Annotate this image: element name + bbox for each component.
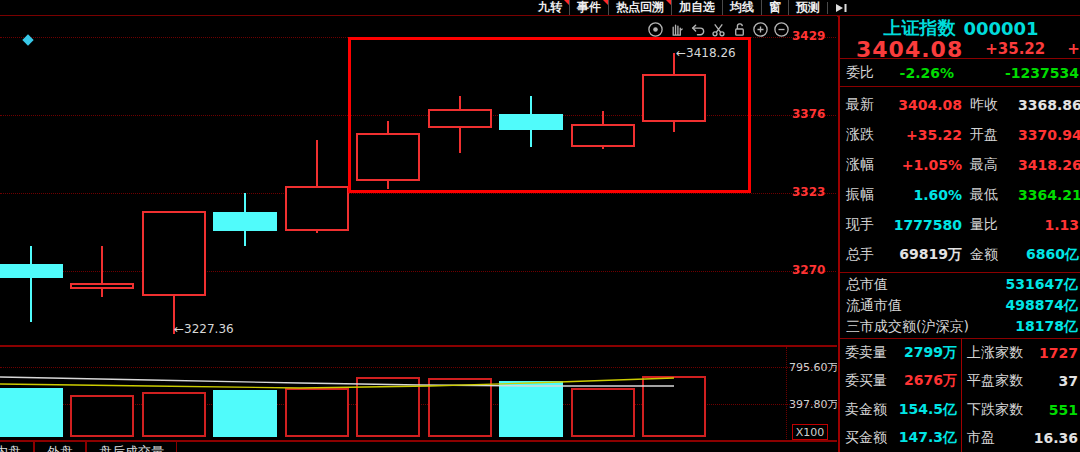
quote-cell: 现手 <box>846 216 892 234</box>
divider <box>840 86 1080 87</box>
quote-cell: +35.22 <box>892 127 962 143</box>
menu-item-2[interactable]: 热点回溯 <box>608 0 671 15</box>
order-row-cell: 154.5亿 <box>899 401 957 419</box>
zoom-in-icon[interactable] <box>751 20 769 38</box>
order-row-cell: 卖金额 <box>845 401 887 419</box>
weibi-row: 委比 -2.26% -1237534 <box>840 60 1080 86</box>
breadth-row-cell: 市盈 <box>967 429 995 447</box>
ma-line-yellow <box>0 378 674 388</box>
breadth-row: 上涨家数1727 <box>962 339 1080 367</box>
volume-bar <box>571 388 635 437</box>
quote-cell: 1777580 <box>892 217 962 233</box>
order-row-cell: 委买量 <box>845 372 887 390</box>
market-cell: 总市值 <box>846 276 888 294</box>
order-row-cell: 2799万 <box>904 344 957 362</box>
quote-row: 涨跌+35.22开盘3370.94 <box>840 120 1080 150</box>
volume-axis-label: 795.60万 <box>789 360 837 375</box>
order-row: 委卖量2799万 <box>840 339 961 367</box>
order-row: 买金额147.3亿 <box>840 424 961 452</box>
quote-cell: 涨幅 <box>846 156 892 174</box>
menu-item-5[interactable]: 窗 <box>761 0 788 15</box>
volume-bar <box>356 377 420 437</box>
quote-cell: 1.13 <box>1018 217 1079 233</box>
quote-cell: 6860亿 <box>1018 246 1079 264</box>
quote-cell: +1.05% <box>892 157 962 173</box>
volume-bar <box>142 392 206 437</box>
index-code: 000001 <box>963 18 1038 39</box>
price-gridline <box>0 193 836 194</box>
scissors-icon[interactable] <box>709 20 727 38</box>
volume-gridline <box>0 367 836 368</box>
volume-bar <box>285 388 349 437</box>
breadth-row-cell: 1727 <box>1039 345 1078 361</box>
quote-row: 现手1777580量比1.13 <box>840 210 1080 240</box>
volume-bar <box>70 395 134 437</box>
bottom-tab-bar: 内盘外盘盘后成交量 <box>0 441 177 452</box>
bottom-tab-2[interactable]: 盘后成交量 <box>86 441 177 452</box>
quote-cell: 最新 <box>846 96 892 114</box>
hand-icon[interactable] <box>667 20 685 38</box>
candle-body <box>0 264 63 279</box>
volume-bar <box>213 390 277 437</box>
order-row-cell: 买金额 <box>845 429 887 447</box>
breadth-row-cell: 37 <box>1059 373 1078 389</box>
breadth-row: 平盘家数37 <box>962 367 1080 395</box>
order-row-cell: 委卖量 <box>845 344 887 362</box>
volume-bar <box>499 381 563 437</box>
order-row-cell: 147.3亿 <box>899 429 957 447</box>
breadth-row-cell: 551 <box>1049 402 1078 418</box>
quote-cell: 最高 <box>962 156 1018 174</box>
quote-panel: 上证指数 000001 3404.08 +35.22 +1.05% 委比 -2.… <box>838 16 1080 452</box>
breadth-row: 下跌家数551 <box>962 396 1080 424</box>
volume-axis-label: 397.80万 <box>789 397 837 412</box>
order-breadth-section: 委卖量2799万委买量2676万卖金额154.5亿买金额147.3亿 上涨家数1… <box>840 338 1080 452</box>
ma-line-white <box>0 377 674 386</box>
quote-cell: 3418.26 <box>1018 157 1080 173</box>
quote-cell: 1.60% <box>892 187 962 203</box>
quote-cell: 3404.08 <box>892 97 962 113</box>
price-axis-label: 3323 <box>792 185 825 199</box>
market-value-rows: 总市值531647亿流通市值498874亿三市成交额(沪深京)18178亿 <box>840 274 1080 337</box>
quote-row: 振幅1.60%最低3364.21 <box>840 180 1080 210</box>
market-cell: 531647亿 <box>1006 276 1078 294</box>
candle-body <box>142 211 206 296</box>
market-row: 三市成交额(沪深京)18178亿 <box>840 316 1080 337</box>
quote-cell: 3368.86 <box>1018 97 1080 113</box>
quote-rows: 最新3404.08昨收3368.86涨跌+35.22开盘3370.94涨幅+1.… <box>840 90 1080 270</box>
menu-item-1[interactable]: 事件 <box>569 0 608 15</box>
candle-body <box>285 186 349 232</box>
menu-item-6[interactable]: 预测 <box>788 0 827 15</box>
annotation-rectangle <box>348 37 751 193</box>
breadth-row-cell: 平盘家数 <box>967 372 1023 390</box>
volume-scale-label: X100 <box>792 424 828 440</box>
quote-cell: 3370.94 <box>1018 127 1080 143</box>
order-column: 委卖量2799万委买量2676万卖金额154.5亿买金额147.3亿 <box>840 339 962 452</box>
candle-body <box>213 212 277 231</box>
quote-cell: 涨跌 <box>846 126 892 144</box>
quote-cell: 总手 <box>846 246 892 264</box>
order-row: 委买量2676万 <box>840 367 961 395</box>
price-gridline <box>0 271 836 272</box>
price-row: 3404.08 +35.22 +1.05% <box>840 38 1080 60</box>
bottom-tab-0[interactable]: 内盘 <box>0 441 34 452</box>
undo-icon[interactable] <box>688 20 706 38</box>
price-axis-label: 3376 <box>792 107 825 121</box>
quote-cell: 3364.21 <box>1018 187 1080 203</box>
quote-row: 最新3404.08昨收3368.86 <box>840 90 1080 120</box>
price-axis-label: 3270 <box>792 263 825 277</box>
breadth-row-cell: 下跌家数 <box>967 401 1023 419</box>
quote-row: 总手69819万金额6860亿 <box>840 240 1080 270</box>
quote-cell: 69819万 <box>892 246 962 264</box>
app-window: 九转事件热点回溯加自选均线窗预测 <box>0 0 1080 452</box>
divider <box>840 58 1080 59</box>
market-cell: 498874亿 <box>1006 297 1078 315</box>
zoom-out-icon[interactable] <box>772 20 790 38</box>
weicha-value: -1237534 <box>954 65 1080 81</box>
volume-bar <box>0 388 63 437</box>
eye-icon[interactable] <box>646 20 664 38</box>
candle-wick <box>30 246 32 323</box>
market-cell: 18178亿 <box>1015 318 1078 336</box>
market-cell: 流通市值 <box>846 297 902 315</box>
market-row: 总市值531647亿 <box>840 274 1080 295</box>
price-change-pct: +1.05% <box>1067 40 1080 58</box>
kline-volume-separator <box>0 345 837 347</box>
breadth-row-cell: 16.36 <box>1034 430 1078 446</box>
volume-bar <box>642 376 706 437</box>
price-axis-label: 3429 <box>792 29 825 43</box>
market-row: 流通市值498874亿 <box>840 295 1080 316</box>
quote-cell: 最低 <box>962 186 1018 204</box>
menu-item-4[interactable]: 均线 <box>722 0 761 15</box>
quote-row: 涨幅+1.05%最高3418.26 <box>840 150 1080 180</box>
top-menu-bar: 九转事件热点回溯加自选均线窗预测 <box>0 0 1080 17</box>
quote-cell: 昨收 <box>962 96 1018 114</box>
order-row: 卖金额154.5亿 <box>840 396 961 424</box>
plot-right-edge <box>786 347 787 439</box>
breadth-row: 市盈16.36 <box>962 424 1080 452</box>
high-price-label: ←3418.26 <box>676 46 736 60</box>
quote-cell: 量比 <box>962 216 1018 234</box>
quote-cell: 振幅 <box>846 186 892 204</box>
breadth-column: 上涨家数1727平盘家数37下跌家数551市盈16.36 <box>962 339 1080 452</box>
breadth-row-cell: 上涨家数 <box>967 344 1023 362</box>
chart-region: X100 内盘外盘盘后成交量 3429337633233270795.60万39… <box>0 16 837 452</box>
quote-cell: 开盘 <box>962 126 1018 144</box>
arrow-to-bar-icon[interactable] <box>827 2 854 14</box>
top-menu: 九转事件热点回溯加自选均线窗预测 <box>531 0 854 15</box>
weibi-value: -2.26% <box>874 65 954 81</box>
quote-cell: 金额 <box>962 246 1018 264</box>
divider <box>840 272 1080 273</box>
menu-item-0[interactable]: 九转 <box>531 0 569 15</box>
bottom-tab-1[interactable]: 外盘 <box>34 441 86 452</box>
market-cell: 三市成交额(沪深京) <box>846 318 969 336</box>
low-price-label: ←3227.36 <box>174 322 234 336</box>
unlock-icon[interactable] <box>730 20 748 38</box>
candle-wick <box>101 246 103 298</box>
candle-body <box>70 283 134 289</box>
order-row-cell: 2676万 <box>904 372 957 390</box>
price-change: +35.22 <box>985 40 1045 58</box>
volume-bar <box>428 378 492 437</box>
menu-item-3[interactable]: 加自选 <box>671 0 722 15</box>
chart-mini-toolbar <box>646 20 790 38</box>
weibi-label: 委比 <box>846 64 874 82</box>
